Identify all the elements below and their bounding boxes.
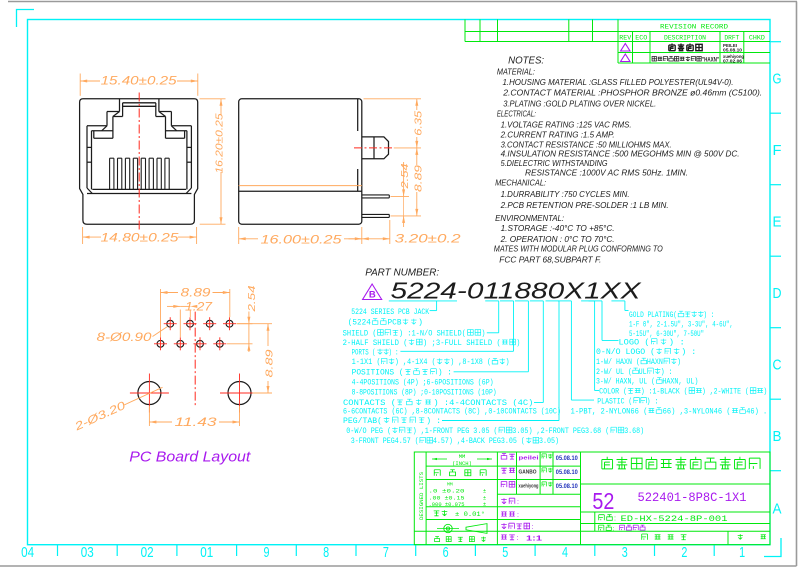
svg-text::: : — [517, 499, 519, 506]
svg-text:DESIGNED LISTS: DESIGNED LISTS — [418, 471, 425, 520]
svg-text:) :: ) : — [438, 370, 452, 378]
svg-text:(INCH): (INCH) — [452, 460, 472, 467]
svg-text:1.HOUSING MATERIAL :GLASS F: 1.HOUSING MATERIAL :GLASS FILLED POLYEST… — [503, 77, 734, 87]
svg-text:GOLD PLATING(: GOLD PLATING( — [629, 312, 677, 320]
svg-text:5: 5 — [502, 544, 508, 561]
svg-text:9: 9 — [264, 544, 270, 561]
svg-text:MECHANICAL:: MECHANICAL: — [495, 178, 546, 187]
svg-text:8.89: 8.89 — [412, 165, 424, 192]
svg-text:1: 1 — [739, 544, 745, 561]
svg-text:RESISTANCE :1000V AC RMS 50: RESISTANCE :1000V AC RMS 50Hz. 1MIN. — [525, 168, 688, 178]
svg-text:) :: ) : — [669, 340, 685, 348]
svg-text:"HAXN": "HAXN" — [702, 57, 719, 63]
svg-text:PC Board Layout: PC Board Layout — [129, 450, 251, 466]
svg-text:E: E — [773, 214, 782, 230]
svg-text:1-F 0", 2-1.5U", 3-3U", 4-6U",: 1-F 0", 2-1.5U", 3-3U", 4-6U", — [629, 322, 733, 330]
svg-text::: : — [613, 526, 615, 533]
svg-text:) :1-N/O SHIELD(: ) :1-N/O SHIELD( — [399, 330, 466, 338]
svg-text:8-8POSITIONS (8P) ;0-10POSITIO: 8-8POSITIONS (8P) ;0-10POSITIONS (10P) — [352, 389, 497, 397]
svg-text:4.57) ,4-BACK PEG3.05 (: 4.57) ,4-BACK PEG3.05 ( — [433, 438, 525, 446]
svg-text:8.89: 8.89 — [264, 349, 276, 377]
svg-text:1-W/ HAXN (: 1-W/ HAXN ( — [596, 359, 640, 367]
svg-text:0-N/O LOGO (: 0-N/O LOGO ( — [596, 349, 655, 357]
svg-text:peilei: peilei — [519, 456, 540, 462]
svg-text:5224-011880X1XX: 5224-011880X1XX — [391, 277, 643, 303]
svg-text:3.20±0.2: 3.20±0.2 — [395, 232, 461, 246]
svg-text:3: 3 — [622, 544, 628, 561]
svg-text:C: C — [773, 357, 782, 373]
svg-text:01: 01 — [200, 544, 213, 561]
svg-text:MM: MM — [447, 482, 453, 488]
svg-text:2.CURRENT RATING :1.5 AMP.: 2.CURRENT RATING :1.5 AMP. — [500, 130, 615, 140]
svg-text:11.43: 11.43 — [175, 415, 218, 429]
svg-text:3.PLATING :GOLD PLATING OVE: 3.PLATING :GOLD PLATING OVER NICKEL. — [503, 98, 656, 108]
svg-text:UL: UL — [639, 369, 647, 377]
svg-text:1:1: 1:1 — [526, 534, 542, 543]
svg-text:1.27: 1.27 — [185, 300, 213, 314]
svg-text:6.35: 6.35 — [412, 111, 424, 136]
svg-text:2.PCB RETENTION PRE-SOLDER: 2.PCB RETENTION PRE-SOLDER :1 LB MIN. — [500, 200, 669, 210]
svg-text:.00 ±0.15: .00 ±0.15 — [429, 495, 465, 501]
svg-text:FCC PART 68,SUBPART F.: FCC PART 68,SUBPART F. — [499, 255, 601, 265]
svg-text:6: 6 — [443, 544, 449, 561]
svg-text:8-Ø0.90: 8-Ø0.90 — [97, 330, 153, 344]
svg-text:MATERIAL:: MATERIAL: — [497, 67, 535, 76]
svg-text:46) .: 46) . — [746, 409, 767, 417]
svg-text:0-W/O PEG (: 0-W/O PEG ( — [346, 428, 391, 436]
svg-text:REV: REV — [619, 34, 631, 41]
svg-text:3-FRONT PEG4.57 (: 3-FRONT PEG4.57 ( — [351, 438, 419, 446]
svg-text:±: ± — [483, 502, 486, 508]
svg-text:3.05) ,2-FRONT PEG3.68 (: 3.05) ,2-FRONT PEG3.68 ( — [512, 428, 609, 436]
svg-text:) :1-BLACK (: ) :1-BLACK ( — [641, 389, 688, 397]
svg-text:PLASTIC (: PLASTIC ( — [597, 398, 632, 406]
svg-text:MATES WITH MODULAR PLUG CO: MATES WITH MODULAR PLUG CONFORMING TO — [494, 244, 663, 254]
svg-text:(5224: (5224 — [348, 320, 371, 328]
svg-text:) ,1-FRONT PEG 3.05 (: ) ,1-FRONT PEG 3.05 ( — [413, 428, 498, 436]
svg-text:): ) — [763, 389, 767, 397]
svg-text:2.54: 2.54 — [246, 285, 258, 312]
svg-text:ENVIRONMENTAL:: ENVIRONMENTAL: — [495, 214, 564, 223]
svg-text:522401-8P8C-1X1: 522401-8P8C-1X1 — [638, 490, 747, 505]
svg-text:3.68): 3.68) — [624, 428, 644, 436]
svg-text:) ,8-1X8 (: ) ,8-1X8 ( — [450, 359, 491, 367]
svg-text:HAXN: HAXN — [647, 359, 663, 367]
svg-text:2. OPERATION : 0°C TO 70°: 2. OPERATION : 0°C TO 70°C. — [500, 234, 615, 244]
svg-text:REVISION RECORD: REVISION RECORD — [660, 24, 728, 31]
svg-text:) :: ) : — [647, 398, 659, 406]
svg-text:2: 2 — [681, 544, 687, 561]
svg-text:) :: ) : — [703, 312, 714, 320]
svg-text:F: F — [773, 143, 782, 159]
svg-text:) :: ) : — [681, 349, 696, 357]
svg-text:05.08.10: 05.08.10 — [556, 469, 578, 476]
svg-text:±: ± — [483, 495, 486, 501]
svg-text::: : — [614, 516, 616, 523]
svg-text:1-PBT, 2-NYLON66 (: 1-PBT, 2-NYLON66 ( — [571, 409, 648, 417]
svg-text:07.02.06: 07.02.06 — [723, 59, 742, 64]
svg-text:05.08.10: 05.08.10 — [723, 48, 743, 53]
svg-text:4-4POSITIONS (4P) ;6-6POSITION: 4-4POSITIONS (4P) ;6-6POSITIONS (6P) — [352, 379, 494, 387]
svg-text:): ) — [677, 359, 681, 367]
svg-text:± 0.01°: ± 0.01° — [455, 511, 485, 518]
svg-text:G: G — [773, 72, 782, 88]
svg-text:B: B — [773, 429, 782, 445]
svg-text:MM: MM — [459, 453, 466, 460]
svg-text:DESCRIPTION: DESCRIPTION — [664, 34, 706, 41]
svg-text:1.VOLTAGE RATING :125 VAC: 1.VOLTAGE RATING :125 VAC RMS. — [501, 119, 632, 129]
svg-text:1-1X1 (: 1-1X1 ( — [352, 359, 381, 367]
svg-text:6-6CONTACTS (6C) ,8-8CONTACTS: 6-6CONTACTS (6C) ,8-8CONTACTS (8C) ,0-10… — [343, 409, 561, 417]
svg-text:DRFT: DRFT — [724, 34, 739, 41]
svg-text::: : — [532, 524, 534, 531]
svg-text:2.54: 2.54 — [399, 163, 411, 189]
svg-text:) ,4-1X4 (: ) ,4-1X4 ( — [395, 359, 436, 367]
svg-text:HAXN, UL): HAXN, UL) — [662, 379, 698, 387]
svg-text:4.INSULATION RESISTANCE :500: 4.INSULATION RESISTANCE :500 MEGOHMS MIN… — [501, 149, 740, 159]
svg-text:LOGO (: LOGO ( — [619, 340, 650, 348]
svg-text:): ) — [481, 330, 485, 338]
svg-text:) :: ) : — [661, 369, 673, 377]
svg-text:D: D — [773, 286, 782, 302]
svg-text:): ) — [516, 340, 520, 348]
svg-text:5.DIELECTRIC WITHSTANDING: 5.DIELECTRIC WITHSTANDING — [501, 158, 608, 168]
svg-text:3-W/ HAXN, UL (: 3-W/ HAXN, UL ( — [596, 379, 655, 387]
svg-text:3.05): 3.05) — [539, 438, 559, 446]
svg-text:16.00±0.25: 16.00±0.25 — [261, 232, 342, 246]
svg-text:) ,2-WHITE (: ) ,2-WHITE ( — [702, 389, 749, 397]
svg-text::: : — [517, 512, 519, 519]
svg-text:05.08.10: 05.08.10 — [556, 483, 578, 490]
svg-text:8.89: 8.89 — [181, 286, 212, 300]
svg-text:B: B — [369, 290, 376, 301]
svg-text:7: 7 — [383, 544, 389, 561]
svg-text:A: A — [773, 502, 782, 518]
svg-text:52: 52 — [592, 488, 614, 514]
svg-text:15.40±0.25: 15.40±0.25 — [101, 74, 177, 88]
svg-text:66) ,3-NYLON46 (: 66) ,3-NYLON46 ( — [663, 409, 731, 417]
svg-text:NOTES:: NOTES: — [508, 54, 544, 66]
svg-text:PORTS (: PORTS ( — [352, 350, 376, 358]
svg-text:02: 02 — [141, 544, 154, 561]
svg-text:2-W/ UL (: 2-W/ UL ( — [596, 369, 632, 377]
svg-text:.000 ±0.075: .000 ±0.075 — [429, 502, 465, 508]
svg-text:POSITIONS (: POSITIONS ( — [352, 370, 404, 378]
svg-text:COLOR (: COLOR ( — [599, 389, 627, 397]
svg-text:) :: ) : — [426, 418, 441, 426]
svg-text:5-15U", 6-30U", 7-50U": 5-15U", 6-30U", 7-50U" — [629, 331, 704, 339]
svg-text:CHKD: CHKD — [749, 34, 765, 41]
svg-text:14.80±0.25: 14.80±0.25 — [101, 230, 179, 244]
svg-text:GANBO: GANBO — [519, 470, 538, 476]
svg-text:16.20±0.25: 16.20±0.25 — [214, 113, 226, 173]
svg-text:CONTACTS (: CONTACTS ( — [343, 400, 396, 408]
svg-text:PEG/TAB(: PEG/TAB( — [343, 418, 382, 426]
svg-text:05.08.10: 05.08.10 — [556, 455, 578, 462]
svg-text:5224 SERIES PCB JACK: 5224 SERIES PCB JACK — [351, 309, 429, 317]
svg-text:ECO: ECO — [635, 34, 647, 41]
svg-text:±: ± — [483, 489, 486, 495]
svg-text:) :4-4CONTACTS (4C): ) :4-4CONTACTS (4C) — [433, 400, 533, 408]
svg-text:04: 04 — [21, 544, 34, 561]
svg-text:): ) — [506, 359, 510, 367]
svg-text:): ) — [418, 320, 423, 328]
svg-text:8: 8 — [323, 544, 329, 561]
svg-text:4: 4 — [562, 544, 568, 561]
svg-text:xuehiyong: xuehiyong — [519, 484, 539, 490]
svg-text:) ;3-FULL SHIELD (: ) ;3-FULL SHIELD ( — [423, 340, 501, 348]
svg-text:2-HALF SHIELD (: 2-HALF SHIELD ( — [343, 340, 408, 348]
svg-text:03: 03 — [81, 544, 94, 561]
svg-text:1.DURRABILITY :750 CYCLES M: 1.DURRABILITY :750 CYCLES MIN. — [501, 189, 630, 199]
svg-text:.0 ±0.20: .0 ±0.20 — [429, 489, 465, 495]
svg-text:2.CONTACT MATERIAL :PHOSPHO: 2.CONTACT MATERIAL :PHOSPHOR BRONZE ø0.4… — [502, 88, 762, 98]
svg-text:1.STORAGE :-40°C TO +85°C.: 1.STORAGE :-40°C TO +85°C. — [501, 223, 615, 233]
svg-text:ED-HX-5224-8P-001: ED-HX-5224-8P-001 — [621, 514, 728, 524]
svg-text:ELECTRICAL:: ELECTRICAL: — [497, 109, 536, 118]
svg-text:) :: ) : — [389, 350, 399, 358]
svg-text:SHIELD (: SHIELD ( — [343, 330, 377, 338]
svg-text::: : — [517, 535, 519, 542]
svg-text:PCB: PCB — [388, 320, 402, 328]
